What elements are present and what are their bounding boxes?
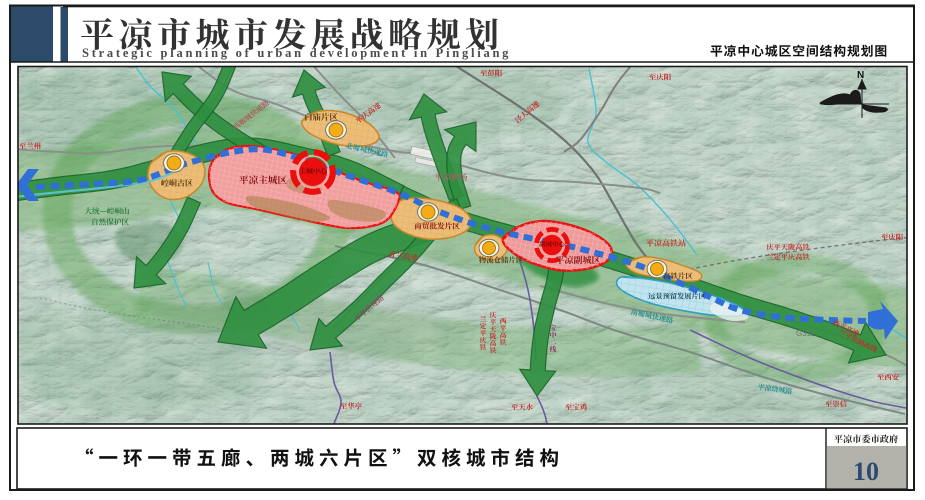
svg-text:G312: G312 xyxy=(796,329,816,338)
svg-text:Strategic planning of urban de: Strategic planning of urban development … xyxy=(82,46,511,60)
svg-text:10: 10 xyxy=(853,457,879,486)
svg-text:N: N xyxy=(857,70,864,81)
